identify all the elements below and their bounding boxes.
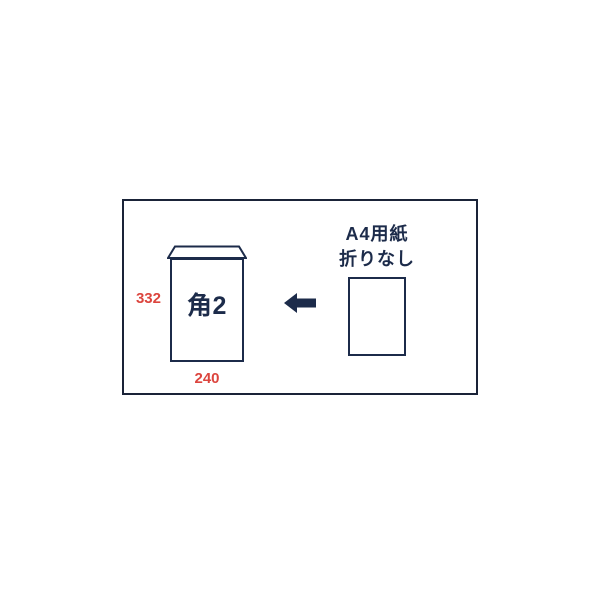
- envelope-size-label: 角2: [187, 286, 227, 322]
- envelope-body: 角2: [170, 258, 244, 362]
- paper-caption: A4用紙 折りなし: [332, 222, 422, 272]
- envelope-flap: [167, 245, 247, 259]
- envelope-width-dimension: 240: [170, 370, 244, 388]
- left-arrow-icon: [283, 292, 317, 314]
- a4-paper: [348, 277, 406, 356]
- diagram-canvas: 角2 332 240 A4用紙 折りなし: [0, 0, 600, 600]
- paper-caption-line2: 折りなし: [332, 247, 422, 272]
- envelope-height-dimension: 332: [110, 290, 161, 308]
- paper-caption-line1: A4用紙: [332, 222, 422, 247]
